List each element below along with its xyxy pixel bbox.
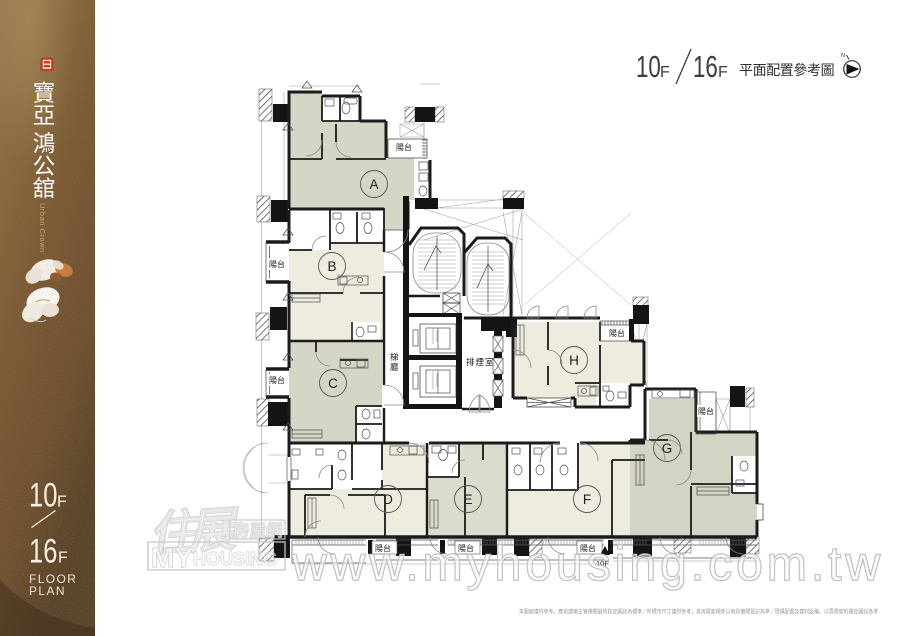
svg-text:www.myhousing.com.tw: www.myhousing.com.tw	[291, 538, 884, 591]
svg-text:G: G	[662, 441, 673, 456]
svg-text:F: F	[58, 550, 68, 567]
svg-text:陽台: 陽台	[698, 406, 714, 416]
svg-text:陽台: 陽台	[269, 375, 285, 385]
svg-text:本圖面僅供參考，應依建築主管機關最終核定圖說為標準／所標示尺: 本圖面僅供參考，應依建築主管機關最終核定圖說為標準／所標示尺寸僅供參考，其房屋面…	[519, 608, 878, 616]
svg-text:HOUSING: HOUSING	[193, 549, 277, 569]
svg-text:PLAN: PLAN	[29, 584, 66, 598]
svg-text:陽台: 陽台	[609, 328, 625, 338]
svg-text:F: F	[57, 494, 67, 511]
svg-text:C: C	[328, 376, 338, 391]
svg-text:H: H	[569, 353, 579, 368]
svg-text:梯: 梯	[390, 352, 399, 362]
svg-text:MY: MY	[151, 542, 193, 573]
svg-text:D: D	[383, 492, 393, 507]
svg-text:舘: 舘	[33, 177, 56, 202]
svg-text:F: F	[718, 64, 728, 81]
svg-text:廳: 廳	[390, 362, 399, 372]
svg-text:亞: 亞	[33, 104, 56, 129]
svg-text:N: N	[841, 53, 845, 59]
svg-text:陽台: 陽台	[269, 259, 285, 269]
svg-text:公: 公	[33, 154, 56, 179]
svg-text:房屋網: 房屋網	[233, 520, 283, 540]
svg-text:E: E	[463, 492, 472, 507]
svg-text:Urban Crown: Urban Crown	[38, 203, 47, 253]
svg-text:A: A	[369, 177, 378, 192]
svg-text:F: F	[660, 64, 670, 81]
svg-text:寶: 寶	[33, 81, 56, 106]
svg-text:10: 10	[636, 49, 661, 83]
svg-text:F: F	[583, 492, 591, 507]
svg-text:平面配置參考圖: 平面配置參考圖	[739, 62, 834, 78]
svg-text:B: B	[327, 259, 336, 274]
svg-text:排煙室: 排煙室	[466, 357, 495, 367]
svg-text:陽台: 陽台	[396, 142, 412, 152]
svg-text:16: 16	[29, 533, 57, 571]
svg-text:鴻: 鴻	[33, 132, 56, 157]
svg-text:10: 10	[29, 477, 57, 515]
svg-text:16: 16	[693, 49, 718, 83]
